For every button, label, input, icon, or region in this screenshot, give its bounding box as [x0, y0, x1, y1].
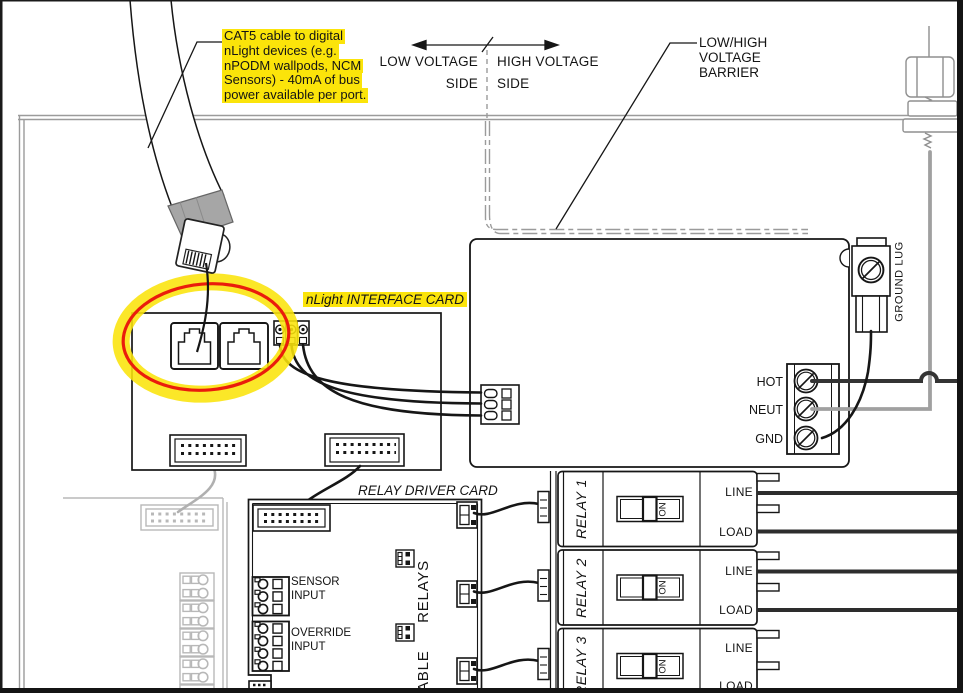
override-input-terminal: [253, 622, 290, 672]
relay-2-name: RELAY 2: [573, 553, 589, 623]
gnd-screw: [795, 427, 818, 450]
cat5-note-line: nPODM wallpods, NCM: [222, 59, 363, 74]
relay-1-line-label: LINE: [707, 485, 753, 499]
relay-1-on-switch-label: ON: [658, 496, 669, 522]
driver-chip-1: [396, 550, 414, 567]
relay-bank: [538, 471, 958, 693]
cat5-note-line: nLight devices (e.g.: [222, 44, 339, 59]
relay-3-load-label: LOAD: [707, 679, 753, 693]
conduit-bolt: [903, 26, 959, 148]
diagram-artwork: [0, 0, 963, 693]
rj45-plug: [175, 218, 234, 275]
ground-lug-label: GROUND LUG: [894, 222, 907, 342]
relay-3-line-label: LINE: [707, 641, 753, 655]
sensor-input-terminal: [253, 577, 290, 616]
relay-1-name: RELAY 1: [573, 474, 589, 544]
rj45-jack-2: [220, 323, 268, 369]
voltage-barrier-label: LOW/HIGH VOLTAGE BARRIER: [699, 35, 767, 80]
relay-1-load-label: LOAD: [707, 525, 753, 539]
relay-driver-card: [249, 500, 482, 693]
relay-2-on-switch-label: ON: [658, 575, 669, 601]
relay-connector-3: [457, 658, 477, 684]
override-input-label: OVERRIDE INPUT: [291, 626, 351, 654]
ground-lug: [852, 238, 890, 332]
ribbon-header-2: [325, 434, 404, 466]
line-load-wires: [757, 493, 958, 610]
arrow-right-icon: [545, 41, 558, 50]
high-voltage-side-label: HIGH VOLTAGE SIDE: [497, 51, 599, 94]
driver-ribbon-header: [253, 505, 330, 531]
arrow-left-icon: [413, 41, 426, 50]
relay-2-load-label: LOAD: [707, 603, 753, 617]
programmable-relays-label: ABLE RELAYS: [414, 560, 432, 692]
cat5-note-line: CAT5 cable to digital: [222, 29, 345, 44]
relay-2-line-label: LINE: [707, 564, 753, 578]
cat5-note: CAT5 cable to digital nLight devices (e.…: [224, 29, 368, 103]
hot-label: HOT: [737, 375, 783, 389]
neut-label: NEUT: [737, 403, 783, 417]
sensor-input-label: SENSOR INPUT: [291, 575, 340, 603]
cat5-note-line: power available per port.: [222, 88, 368, 103]
relay-control-wires: [474, 503, 539, 670]
relay-connector-1: [457, 502, 477, 528]
power-supply-box: [470, 239, 849, 467]
gnd-label: GND: [737, 432, 783, 446]
low-voltage-side-label: LOW VOLTAGE SIDE: [362, 51, 478, 94]
driver-chip-2: [396, 624, 414, 641]
relay-connector-2: [457, 581, 477, 607]
power-input-plug: [481, 385, 519, 424]
interface-card-title: nLight INTERFACE CARD: [303, 292, 467, 307]
ghost-card: [63, 498, 227, 691]
wiring-diagram: CAT5 cable to digital nLight devices (e.…: [0, 0, 963, 693]
ribbon-header-1: [170, 435, 246, 466]
rj45-jack-1: [171, 323, 218, 369]
driver-card-title: RELAY DRIVER CARD: [358, 483, 498, 498]
relay-3-name: RELAY 3: [573, 631, 589, 693]
relay-3-on-switch-label: ON: [658, 653, 669, 679]
cat5-note-line: Sensors) - 40mA of bus: [222, 73, 362, 88]
